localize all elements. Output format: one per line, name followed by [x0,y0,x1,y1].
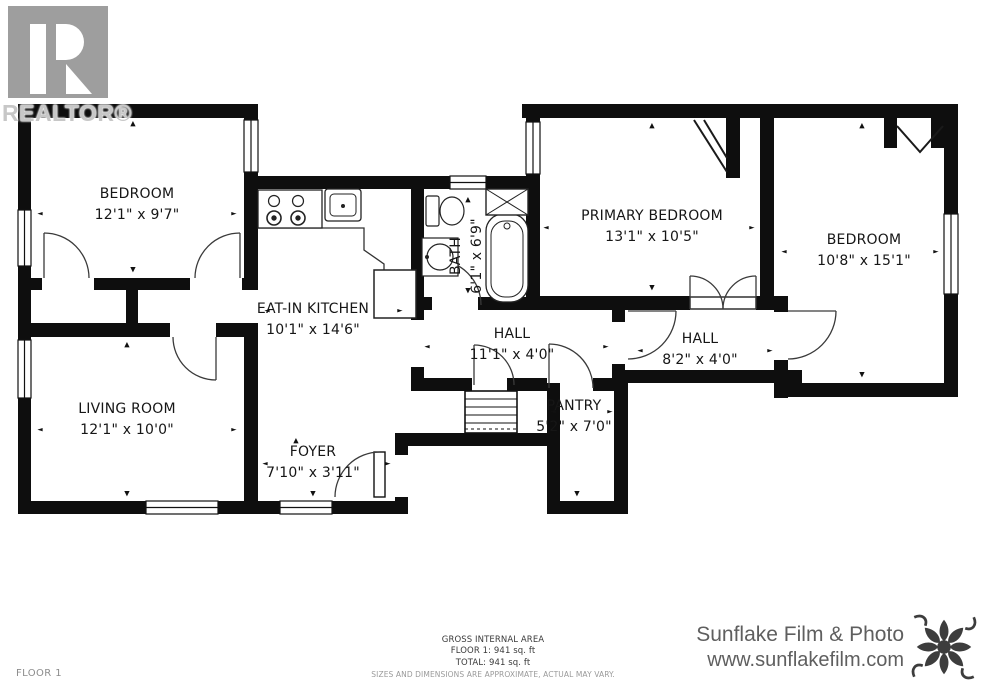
realtor-r-icon [8,6,108,98]
dimension-arrow: ► [933,249,938,256]
area-disclaimer: SIZES AND DIMENSIONS ARE APPROXIMATE, AC… [371,670,614,680]
walls [18,104,958,514]
area-floor1: FLOOR 1: 941 sq. ft [371,646,614,657]
room-label-bedroom-2: BEDROOM10'8" x 15'1" [817,230,911,272]
dimension-arrow: ◄ [424,344,429,351]
room-name: LIVING ROOM [78,399,175,420]
room-label-hall-1: HALL11'1" x 4'0" [470,324,555,366]
room-name: FOYER [266,442,360,463]
room-label-primary-bedroom: PRIMARY BEDROOM13'1" x 10'5" [581,206,723,248]
room-dimensions: 13'1" x 10'5" [581,227,723,248]
room-label-bedroom-1: BEDROOM12'1" x 9'7" [95,184,180,226]
dimension-arrow: ◄ [37,211,42,218]
dimension-arrow: ► [231,211,236,218]
dimension-arrow: ▼ [310,491,315,498]
room-dimensions: 8'2" x 4'0" [662,350,738,371]
dimension-arrow: ▲ [465,197,470,204]
linen-closet-icon [486,189,528,215]
studio-ornament-icon [910,613,978,681]
dimension-arrow: ▼ [574,491,579,498]
room-dimensions: 5'2" x 7'0" [536,417,612,438]
bathtub-icon [486,214,528,302]
room-dimensions: 10'1" x 14'6" [257,320,369,341]
dimension-arrow: ► [231,427,236,434]
dimension-arrow: ▼ [859,372,864,379]
room-name: BEDROOM [817,230,911,251]
dimension-arrow: ► [607,409,612,416]
dimension-arrow: ▼ [130,267,135,274]
dimension-arrow: ▼ [649,285,654,292]
room-label-bath: BATH6'1" x 6'9" [446,218,488,294]
stove-icon [258,190,322,228]
room-dimensions: 12'1" x 10'0" [78,420,175,441]
room-dimensions: 7'10" x 3'11" [266,463,360,484]
basement-stairs-icon [465,391,517,433]
room-label-eat-in-kitchen: EAT-IN KITCHEN10'1" x 14'6" [257,299,369,341]
dimension-arrow: ► [397,308,402,315]
kitchen-sink-icon [325,189,361,221]
area-total: TOTAL: 941 sq. ft [371,658,614,669]
dimension-arrow: ► [385,461,390,468]
dimension-arrow: ◄ [781,249,786,256]
dimension-arrow: ▲ [124,342,129,349]
room-name: BATH [446,218,467,294]
room-name: BEDROOM [95,184,180,205]
dimension-arrow: ▲ [293,438,298,445]
area-title: GROSS INTERNAL AREA [371,635,614,646]
room-label-foyer: FOYER7'10" x 3'11" [266,442,360,484]
dimension-arrow: ◄ [262,461,267,468]
dimension-arrow: ► [767,348,772,355]
room-dimensions: 11'1" x 4'0" [470,345,555,366]
dimension-arrow: ▲ [859,123,864,130]
realtor-wordmark: REALTOR® [2,100,132,127]
room-name: HALL [662,329,738,350]
room-dimensions: 6'1" x 6'9" [467,218,488,294]
refrigerator-icon [374,270,416,318]
room-name: PANTRY [536,396,612,417]
room-name: PRIMARY BEDROOM [581,206,723,227]
gross-area-note: GROSS INTERNAL AREA FLOOR 1: 941 sq. ft … [371,635,614,681]
room-label-living-room: LIVING ROOM12'1" x 10'0" [78,399,175,441]
room-label-hall-2: HALL8'2" x 4'0" [662,329,738,371]
dimension-arrow: ◄ [37,427,42,434]
studio-credit: Sunflake Film & Photo www.sunflakefilm.c… [696,613,978,681]
dimension-arrow: ► [603,344,608,351]
studio-text: Sunflake Film & Photo www.sunflakefilm.c… [696,622,904,672]
dimension-arrow: ▼ [124,491,129,498]
dimension-arrow: ◄ [543,225,548,232]
realtor-logo [8,6,108,98]
dimension-arrow: ◄ [550,409,555,416]
studio-name: Sunflake Film & Photo [696,622,904,648]
dimension-arrow: ▲ [649,123,654,130]
kitchen-counter [258,228,384,270]
dimension-arrow: ◄ [264,308,269,315]
room-label-pantry: PANTRY5'2" x 7'0" [536,396,612,438]
room-name: EAT-IN KITCHEN [257,299,369,320]
dimension-arrow: ◄ [637,348,642,355]
studio-url: www.sunflakefilm.com [696,648,904,672]
room-dimensions: 12'1" x 9'7" [95,205,180,226]
room-name: HALL [470,324,555,345]
floor-label: FLOOR 1 [16,668,62,679]
dimension-arrow: ► [749,225,754,232]
room-dimensions: 10'8" x 15'1" [817,251,911,272]
dimension-arrow: ▼ [465,288,470,295]
